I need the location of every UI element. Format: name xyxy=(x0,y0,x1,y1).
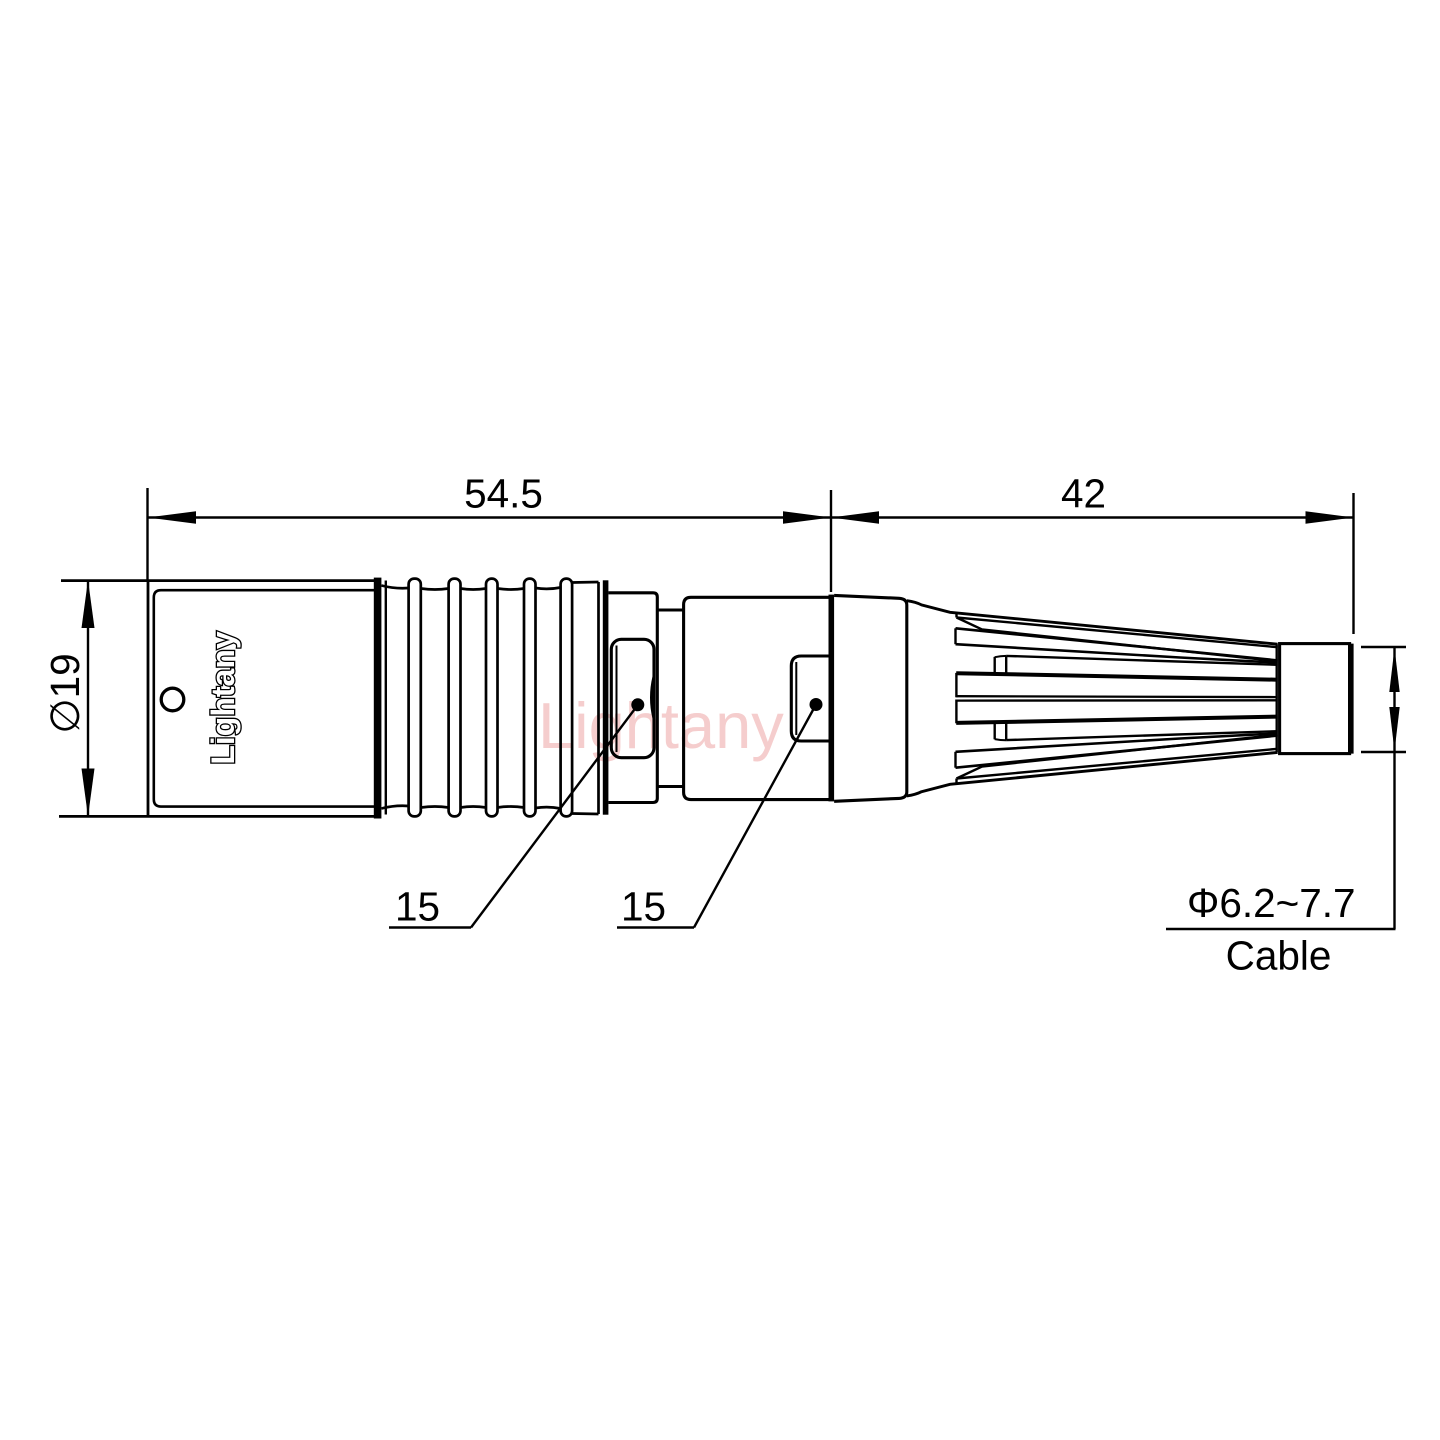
svg-text:Cable: Cable xyxy=(1226,933,1332,979)
svg-text:Lightany: Lightany xyxy=(538,689,784,762)
svg-text:Lightany: Lightany xyxy=(205,631,241,765)
svg-text:Φ6.2~7.7: Φ6.2~7.7 xyxy=(1187,880,1356,926)
svg-text:54.5: 54.5 xyxy=(464,471,543,517)
svg-text:∅19: ∅19 xyxy=(42,653,88,733)
svg-text:42: 42 xyxy=(1061,471,1106,517)
svg-text:15: 15 xyxy=(621,884,666,930)
svg-text:15: 15 xyxy=(395,884,440,930)
